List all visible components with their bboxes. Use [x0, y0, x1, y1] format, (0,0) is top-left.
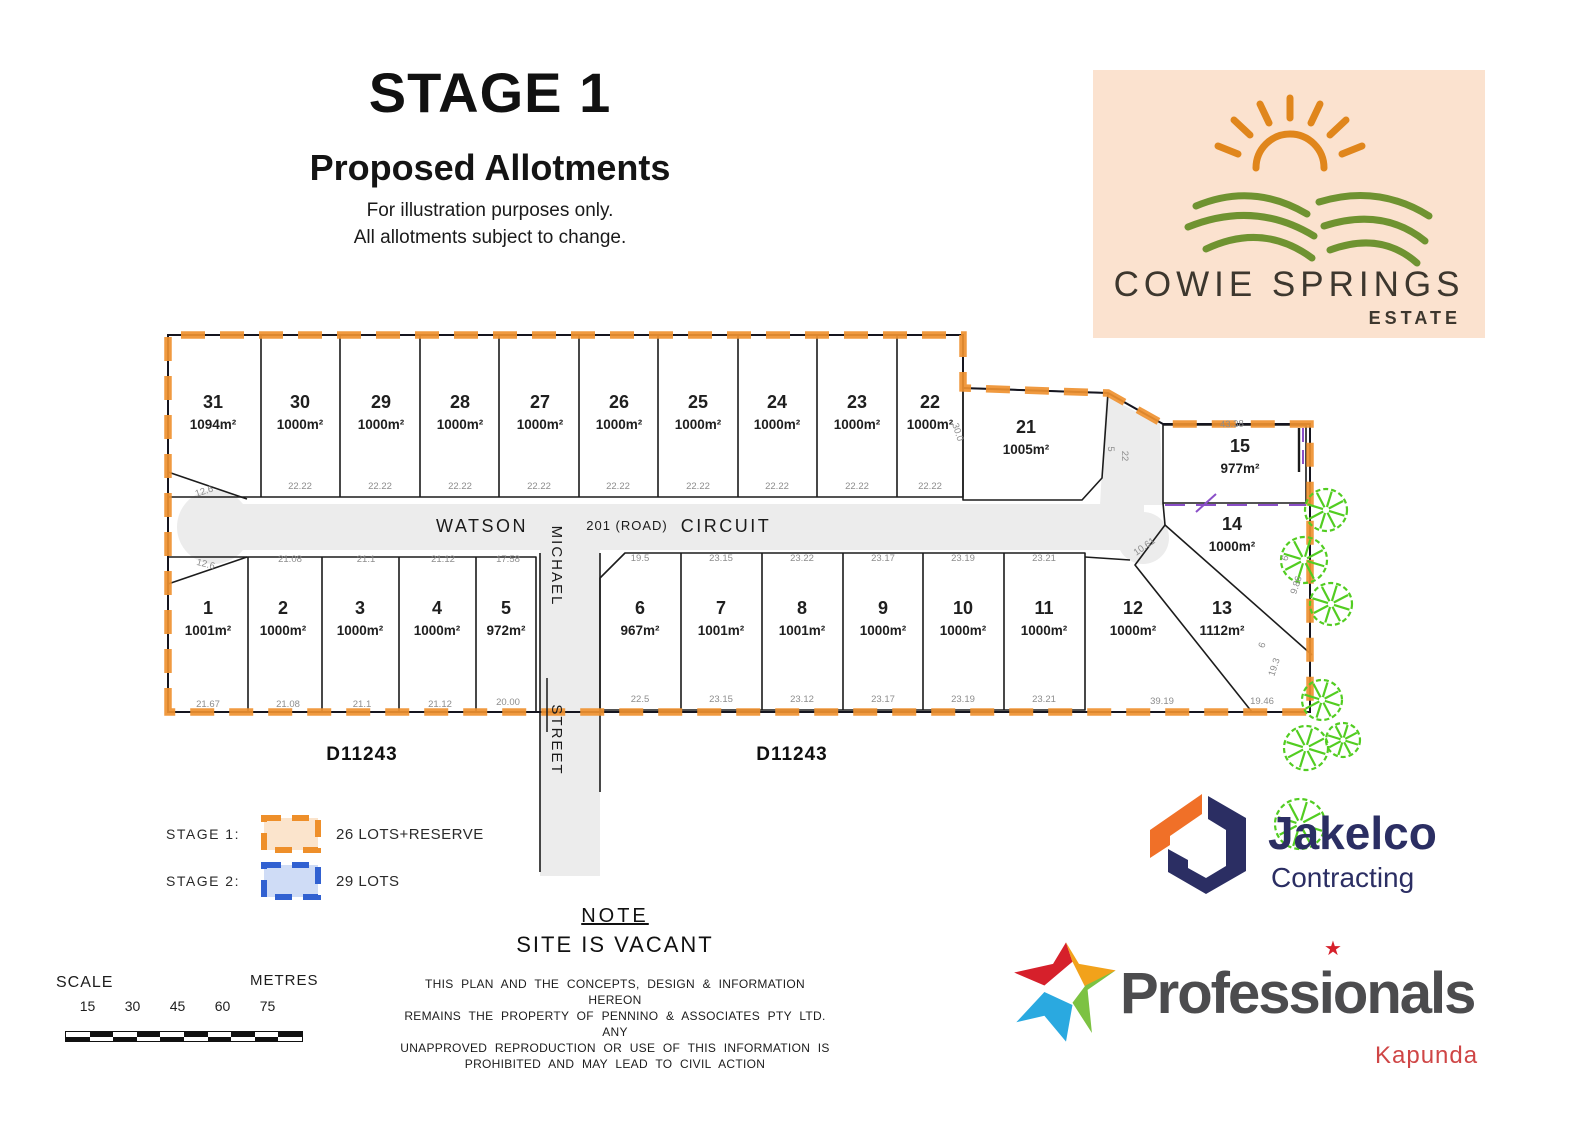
- scale-units: METRES: [250, 972, 319, 989]
- dimension-label: 22.22: [288, 481, 312, 492]
- lot-number: 8: [797, 598, 807, 618]
- lot-area: 1000m²: [834, 417, 881, 432]
- scale-bar-segment: [184, 1032, 208, 1041]
- lot-number: 12: [1123, 598, 1143, 618]
- lot-number: 25: [688, 392, 708, 412]
- dimension-label: 22.22: [527, 481, 551, 492]
- dimension-label: 22.22: [448, 481, 472, 492]
- lot-area: 1001m²: [779, 623, 826, 638]
- dimension-label: 22: [1119, 451, 1130, 462]
- scale-ticks: 1530456075: [65, 998, 305, 1014]
- dimension-label: 20.00: [496, 697, 520, 708]
- legend-stage1: STAGE 1: 26 LOTS+RESERVE: [166, 814, 484, 854]
- lot-number: 15: [1230, 436, 1250, 456]
- street-name-street: STREET: [548, 704, 565, 775]
- dimension-label: 23.17: [871, 553, 895, 564]
- road-number: 201 (ROAD): [586, 518, 668, 533]
- note-line: PROHIBITED AND MAY LEAD TO CIVIL ACTION: [400, 1056, 830, 1072]
- dimension-label: 23.19: [951, 694, 975, 705]
- dimension-label: 23.17: [871, 694, 895, 705]
- scale-tick: 45: [155, 998, 200, 1014]
- professionals-i-star-icon: ★: [1324, 936, 1342, 961]
- jakelco-sub: Contracting: [1271, 862, 1414, 894]
- dimension-label: 23.21: [1032, 553, 1056, 564]
- lot-number: 11: [1034, 598, 1053, 618]
- scale-bar-segment: [137, 1032, 161, 1041]
- lot-number: 3: [355, 598, 365, 618]
- dimension-label: 23.15: [709, 694, 733, 705]
- lot-area: 1000m²: [358, 417, 405, 432]
- professionals-star-icon: [1012, 938, 1120, 1046]
- note-block: NOTE SITE IS VACANT THIS PLAN AND THE CO…: [400, 905, 830, 1072]
- tree-icon: [1284, 726, 1328, 770]
- tree-icon: [1326, 723, 1360, 757]
- stage2-swatch-icon: [260, 861, 322, 901]
- dimension-label: 21.12: [431, 554, 455, 565]
- dimension-label: 17.58: [496, 554, 520, 565]
- dimension-label: 5: [1105, 446, 1116, 451]
- lot-number: 31: [203, 392, 223, 412]
- lot-number: 9: [878, 598, 888, 618]
- lot-area: 1000m²: [337, 623, 384, 638]
- legend-stage2-value: 29 LOTS: [336, 873, 400, 890]
- note-body: THIS PLAN AND THE CONCEPTS, DESIGN & INF…: [400, 976, 830, 1072]
- lot-area: 1000m²: [1110, 623, 1157, 638]
- jakelco-hexagon-icon: [1150, 794, 1246, 894]
- stage1-swatch-icon: [260, 814, 322, 854]
- lot-area: 1000m²: [517, 417, 564, 432]
- lot-number: 4: [432, 598, 442, 618]
- dimension-label: 22.22: [368, 481, 392, 492]
- scale-bar: [65, 1031, 303, 1042]
- lot-area: 1000m²: [260, 623, 307, 638]
- note-line: THIS PLAN AND THE CONCEPTS, DESIGN & INF…: [400, 976, 830, 1008]
- street-name-michael: MICHAEL: [548, 526, 565, 607]
- lot-number: 6: [635, 598, 645, 618]
- lot-number: 10: [953, 598, 973, 618]
- dimension-label: 22.22: [845, 481, 869, 492]
- scale-tick: 15: [65, 998, 110, 1014]
- lot-area: 1112m²: [1199, 623, 1245, 638]
- lot-area: 1094m²: [190, 417, 237, 432]
- lot-number: 21: [1016, 417, 1036, 437]
- lot-number: 7: [716, 598, 726, 618]
- dimension-label: 19.3: [1267, 657, 1283, 678]
- lot-number: 2: [278, 598, 288, 618]
- scale-bar-segment: [160, 1032, 184, 1041]
- lot-number: 27: [530, 392, 550, 412]
- lot-area: 1000m²: [596, 417, 643, 432]
- plan-page: STAGE 1 Proposed Allotments For illustra…: [0, 0, 1588, 1123]
- legend-stage2-label: STAGE 2:: [166, 873, 246, 889]
- dimension-label: 39.19: [1150, 696, 1174, 707]
- lot-number: 26: [609, 392, 629, 412]
- plan-number: D11243: [326, 744, 398, 765]
- scale-bar-segment: [255, 1032, 279, 1041]
- tree-icon: [1310, 583, 1352, 625]
- dimension-label: 23.22: [790, 553, 814, 564]
- lot-number: 30: [290, 392, 310, 412]
- note-line: UNAPPROVED REPRODUCTION OR USE OF THIS I…: [400, 1040, 830, 1056]
- lot-area: 1000m²: [940, 623, 987, 638]
- lot-number: 29: [371, 392, 391, 412]
- lot-area: 1000m²: [860, 623, 907, 638]
- note-line: REMAINS THE PROPERTY OF PENNINO & ASSOCI…: [400, 1008, 830, 1040]
- lot-number: 5: [501, 598, 511, 618]
- lot-area: 1005m²: [1003, 442, 1050, 457]
- dimension-label: 22.22: [765, 481, 789, 492]
- lot-area: 1000m²: [414, 623, 461, 638]
- lot-number: 23: [847, 392, 867, 412]
- lot-area: 1000m²: [1021, 623, 1068, 638]
- scale-bar-segment: [90, 1032, 114, 1041]
- scale-tick: 60: [200, 998, 245, 1014]
- dimension-label: 19.5: [631, 553, 650, 564]
- professionals-location: Kapunda: [1375, 1042, 1478, 1070]
- lot-area: 1001m²: [185, 623, 232, 638]
- dimension-label: 21.1: [357, 554, 376, 565]
- lot-number: 28: [450, 392, 470, 412]
- scale-bar-segment: [66, 1032, 90, 1041]
- legend-stage1-label: STAGE 1:: [166, 826, 246, 842]
- dimension-label: 23.19: [951, 553, 975, 564]
- dimension-label: 22.5: [631, 694, 650, 705]
- lot-number: 24: [767, 392, 787, 412]
- lot-number: 22: [920, 392, 940, 412]
- dimension-label: 21.12: [428, 699, 452, 710]
- dimension-label: 19.46: [1250, 696, 1274, 707]
- lot-number: 14: [1222, 514, 1242, 534]
- legend-stage2: STAGE 2: 29 LOTS: [166, 861, 400, 901]
- plan-number: D11243: [756, 744, 828, 765]
- dimension-label: 23.15: [709, 553, 733, 564]
- road-name-circuit: CIRCUIT: [681, 516, 772, 536]
- dimension-label: 21.08: [278, 554, 302, 565]
- scale-tick: 75: [245, 998, 290, 1014]
- dimension-label: 23.12: [790, 694, 814, 705]
- scale-bar-segment: [278, 1032, 302, 1041]
- dimension-label: 23.21: [1032, 694, 1056, 705]
- dimension-label: 6: [1257, 641, 1269, 649]
- dimension-label: 22.22: [918, 481, 942, 492]
- site-status: SITE IS VACANT: [400, 932, 830, 958]
- lot-area: 1000m²: [907, 417, 954, 432]
- scale-tick: 30: [110, 998, 155, 1014]
- dimension-label: 21.08: [276, 699, 300, 710]
- scale-bar-segment: [113, 1032, 137, 1041]
- lot-area: 1000m²: [1209, 539, 1256, 554]
- jakelco-name: Jakelco: [1268, 806, 1437, 860]
- dimension-label: 21.67: [196, 699, 220, 710]
- lot-number: 13: [1212, 598, 1232, 618]
- lot-area: 1000m²: [277, 417, 324, 432]
- scale-bar-segment: [231, 1032, 255, 1041]
- dimension-label: 43.38: [1220, 419, 1244, 431]
- lot-area: 967m²: [620, 623, 660, 638]
- dimension-label: 22.22: [606, 481, 630, 492]
- scale-label: SCALE: [56, 974, 113, 992]
- legend-stage1-value: 26 LOTS+RESERVE: [336, 826, 484, 843]
- lot-area: 972m²: [486, 623, 526, 638]
- dimension-label: 22.22: [686, 481, 710, 492]
- tree-icon: [1305, 489, 1347, 531]
- lot-area: 1000m²: [437, 417, 484, 432]
- scale-bar-segment: [208, 1032, 232, 1041]
- road-name-watson: WATSON: [436, 516, 528, 536]
- lot-area: 1001m²: [698, 623, 745, 638]
- dimension-label: 21.1: [353, 699, 372, 710]
- lot-number: 1: [203, 598, 213, 618]
- lot-area: 1000m²: [675, 417, 722, 432]
- professionals-name: Professionals: [1120, 960, 1474, 1027]
- lot-area: 977m²: [1220, 461, 1260, 476]
- note-heading: NOTE: [400, 905, 830, 928]
- lot-area: 1000m²: [754, 417, 801, 432]
